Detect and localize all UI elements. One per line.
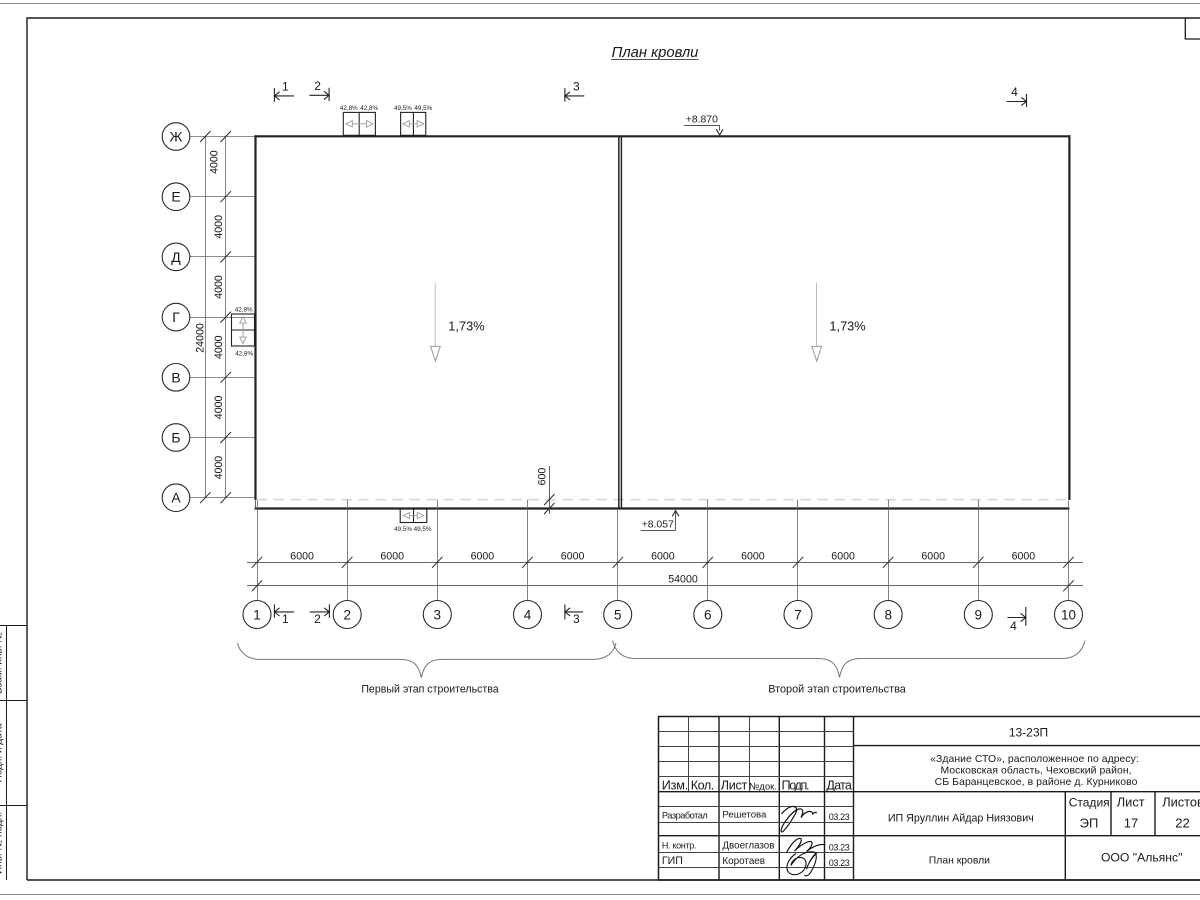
- svg-text:6000: 6000: [1012, 550, 1036, 562]
- svg-text:54000: 54000: [668, 574, 698, 586]
- svg-text:8: 8: [884, 607, 892, 622]
- svg-text:Дата: Дата: [826, 778, 852, 792]
- svg-text:03.23: 03.23: [829, 812, 850, 822]
- svg-text:Разработал: Разработал: [662, 811, 708, 821]
- svg-text:6000: 6000: [471, 550, 495, 562]
- svg-text:1: 1: [253, 607, 261, 622]
- svg-text:Изм.: Изм.: [662, 778, 689, 792]
- svg-text:4: 4: [1011, 85, 1018, 99]
- svg-text:03.23: 03.23: [829, 858, 850, 868]
- svg-text:+8.870: +8.870: [686, 115, 718, 126]
- svg-text:9: 9: [975, 607, 983, 622]
- svg-text:13-23П: 13-23П: [1009, 726, 1048, 740]
- svg-text:03.23: 03.23: [829, 843, 850, 853]
- svg-text:24000: 24000: [195, 323, 207, 353]
- svg-text:Листов: Листов: [1162, 794, 1200, 809]
- svg-text:5: 5: [614, 607, 622, 622]
- svg-text:Лист: Лист: [721, 778, 748, 792]
- svg-text:2: 2: [314, 612, 321, 626]
- svg-text:1,73%: 1,73%: [829, 318, 865, 333]
- svg-text:4: 4: [524, 607, 532, 622]
- svg-text:6000: 6000: [651, 550, 675, 562]
- svg-text:Двоеглазов: Двоеглазов: [722, 841, 774, 852]
- svg-text:17: 17: [1124, 815, 1138, 830]
- svg-text:План кровли: План кровли: [929, 855, 990, 866]
- svg-text:6000: 6000: [380, 550, 404, 562]
- svg-text:Второй этап строительства: Второй этап строительства: [768, 683, 907, 695]
- svg-text:№док.: №док.: [749, 781, 777, 792]
- svg-text:Коротаев: Коротаев: [722, 856, 765, 867]
- svg-text:Е: Е: [171, 189, 180, 205]
- svg-text:Первый этап строительства: Первый этап строительства: [361, 683, 498, 695]
- svg-text:Стадия: Стадия: [1069, 795, 1110, 809]
- svg-text:Московская область, Чеховский: Московская область, Чеховский район,: [940, 765, 1131, 777]
- svg-text:6000: 6000: [741, 550, 765, 562]
- svg-text:2: 2: [314, 79, 321, 93]
- svg-text:СБ Баранцевское, в районе д. К: СБ Баранцевское, в районе д. Курниково: [935, 777, 1138, 788]
- svg-text:22: 22: [1175, 815, 1189, 830]
- svg-text:600: 600: [536, 468, 548, 486]
- svg-text:4000: 4000: [209, 150, 221, 174]
- svg-text:Б: Б: [171, 430, 180, 446]
- svg-text:1: 1: [282, 612, 289, 626]
- svg-text:Кол.: Кол.: [691, 778, 715, 792]
- svg-text:А: А: [171, 490, 181, 506]
- svg-text:Инв. № подл.: Инв. № подл.: [0, 812, 5, 874]
- svg-text:В: В: [171, 369, 180, 385]
- svg-text:ИП Яруллин Айдар Ниязович: ИП Яруллин Айдар Ниязович: [888, 812, 1034, 824]
- svg-text:42,8%: 42,8%: [340, 105, 358, 112]
- svg-text:49,5%: 49,5%: [414, 526, 432, 533]
- svg-text:3: 3: [434, 607, 442, 622]
- svg-text:42,8%: 42,8%: [235, 306, 253, 313]
- svg-text:4000: 4000: [213, 396, 225, 420]
- svg-text:2: 2: [343, 607, 351, 622]
- svg-text:Подп.: Подп.: [782, 778, 810, 792]
- svg-text:1,73%: 1,73%: [448, 318, 484, 333]
- svg-text:Г: Г: [172, 309, 180, 325]
- svg-text:1: 1: [282, 79, 289, 93]
- svg-text:Подп. и дата: Подп. и дата: [0, 723, 5, 782]
- svg-text:ГИП: ГИП: [662, 855, 683, 867]
- svg-text:План кровли: План кровли: [612, 45, 699, 61]
- svg-text:Решетова: Решетова: [722, 810, 767, 821]
- svg-text:49,5%: 49,5%: [394, 105, 412, 112]
- svg-text:Лист: Лист: [1117, 794, 1145, 809]
- svg-text:4000: 4000: [213, 456, 225, 480]
- svg-text:6000: 6000: [290, 550, 314, 562]
- svg-text:ООО "Альянс": ООО "Альянс": [1101, 851, 1183, 865]
- svg-text:6000: 6000: [921, 550, 945, 562]
- svg-text:3: 3: [573, 79, 580, 93]
- svg-text:4000: 4000: [213, 275, 225, 299]
- svg-text:Ж: Ж: [170, 129, 183, 145]
- svg-text:+8.057: +8.057: [642, 519, 674, 530]
- svg-text:4000: 4000: [213, 215, 225, 239]
- svg-text:42,8%: 42,8%: [235, 350, 253, 357]
- svg-text:4: 4: [1010, 619, 1017, 633]
- svg-text:49,5%: 49,5%: [394, 526, 412, 533]
- svg-text:6000: 6000: [831, 550, 855, 562]
- svg-text:6: 6: [704, 607, 712, 622]
- svg-text:7: 7: [794, 607, 802, 622]
- svg-text:Взам. инв. №: Взам. инв. №: [0, 632, 5, 694]
- svg-text:ЭП: ЭП: [1080, 815, 1099, 830]
- svg-text:6000: 6000: [561, 550, 585, 562]
- svg-text:Н. контр.: Н. контр.: [662, 841, 697, 851]
- svg-text:3: 3: [573, 612, 580, 626]
- svg-text:Д: Д: [171, 249, 181, 265]
- svg-text:«Здание СТО», расположенное по: «Здание СТО», расположенное по адресу:: [930, 754, 1139, 765]
- svg-text:42,8%: 42,8%: [360, 105, 378, 112]
- svg-text:4000: 4000: [213, 335, 225, 359]
- svg-text:49,5%: 49,5%: [414, 105, 432, 112]
- svg-text:10: 10: [1061, 607, 1076, 622]
